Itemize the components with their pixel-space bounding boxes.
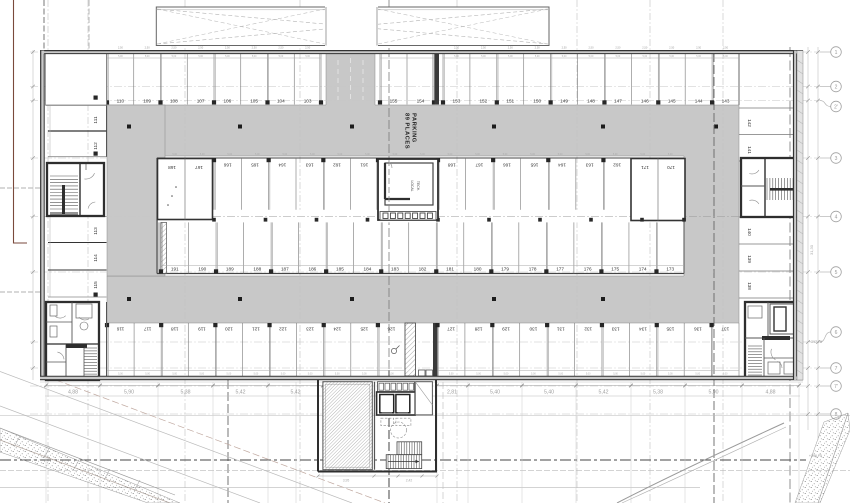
svg-text:175: 175 bbox=[611, 267, 619, 272]
svg-text:31,30: 31,30 bbox=[809, 244, 814, 255]
svg-text:171: 171 bbox=[641, 165, 649, 170]
svg-text:125: 125 bbox=[360, 327, 368, 332]
svg-text:5,00: 5,00 bbox=[145, 55, 150, 58]
svg-text:7: 7 bbox=[835, 366, 838, 372]
svg-text:103: 103 bbox=[304, 98, 312, 103]
svg-text:2,50: 2,50 bbox=[278, 46, 284, 50]
svg-text:4,88: 4,88 bbox=[765, 390, 775, 396]
svg-text:+396,75: +396,75 bbox=[809, 454, 822, 458]
svg-text:2,50: 2,50 bbox=[642, 46, 648, 50]
svg-text:190: 190 bbox=[198, 267, 206, 272]
svg-text:3,95: 3,95 bbox=[343, 479, 350, 483]
svg-text:5,00: 5,00 bbox=[454, 55, 459, 58]
svg-text:5,90: 5,90 bbox=[708, 390, 718, 396]
svg-text:187: 187 bbox=[281, 267, 289, 272]
svg-text:1: 1 bbox=[835, 50, 838, 56]
svg-text:182: 182 bbox=[419, 267, 427, 272]
svg-text:5,00: 5,00 bbox=[723, 373, 728, 376]
svg-text:4,88: 4,88 bbox=[68, 390, 78, 396]
svg-text:2': 2' bbox=[834, 104, 838, 110]
svg-text:2,50: 2,50 bbox=[696, 46, 702, 50]
svg-text:2,50: 2,50 bbox=[454, 46, 460, 50]
svg-text:2,50: 2,50 bbox=[669, 46, 675, 50]
svg-text:164: 164 bbox=[558, 162, 566, 167]
svg-text:152: 152 bbox=[479, 98, 487, 103]
svg-text:130: 130 bbox=[529, 327, 537, 332]
svg-text:2,42: 2,42 bbox=[406, 479, 413, 483]
svg-text:5,00: 5,00 bbox=[200, 153, 205, 156]
svg-text:+397,75: +397,75 bbox=[809, 340, 822, 344]
svg-text:115: 115 bbox=[93, 281, 98, 289]
svg-text:5,00: 5,00 bbox=[365, 153, 370, 156]
svg-text:5,00: 5,00 bbox=[281, 373, 286, 376]
svg-text:5,00: 5,00 bbox=[668, 373, 673, 376]
svg-text:5,00: 5,00 bbox=[562, 55, 567, 58]
svg-text:127: 127 bbox=[447, 327, 455, 332]
svg-text:2,50: 2,50 bbox=[225, 46, 231, 50]
svg-text:5: 5 bbox=[835, 270, 838, 276]
svg-text:126: 126 bbox=[387, 327, 395, 332]
svg-text:188: 188 bbox=[253, 267, 261, 272]
svg-text:148: 148 bbox=[587, 98, 595, 103]
svg-text:163: 163 bbox=[305, 162, 313, 167]
svg-text:5,38: 5,38 bbox=[180, 390, 190, 396]
svg-text:147: 147 bbox=[614, 98, 622, 103]
svg-text:89 PLACES: 89 PLACES bbox=[404, 113, 410, 149]
svg-text:138: 138 bbox=[747, 282, 752, 290]
svg-text:5,00: 5,00 bbox=[118, 373, 123, 376]
svg-text:155: 155 bbox=[390, 98, 398, 103]
svg-text:133: 133 bbox=[611, 327, 619, 332]
svg-text:178: 178 bbox=[529, 267, 537, 272]
svg-text:161: 161 bbox=[360, 162, 368, 167]
svg-text:5,42: 5,42 bbox=[598, 390, 608, 396]
svg-text:181: 181 bbox=[446, 267, 454, 272]
svg-text:5,00: 5,00 bbox=[393, 153, 398, 156]
svg-text:5,00: 5,00 bbox=[530, 153, 535, 156]
svg-text:2,50: 2,50 bbox=[305, 46, 311, 50]
svg-text:2,50: 2,50 bbox=[118, 46, 124, 50]
svg-text:145: 145 bbox=[668, 98, 676, 103]
svg-text:5,00: 5,00 bbox=[586, 373, 591, 376]
svg-text:5,00: 5,00 bbox=[308, 373, 313, 376]
svg-text:123: 123 bbox=[306, 327, 314, 332]
svg-text:5,00: 5,00 bbox=[145, 373, 150, 376]
svg-text:144: 144 bbox=[695, 98, 703, 103]
svg-text:2,50: 2,50 bbox=[723, 46, 729, 50]
svg-text:5,00: 5,00 bbox=[504, 373, 509, 376]
svg-text:186: 186 bbox=[308, 267, 316, 272]
svg-text:2,50: 2,50 bbox=[252, 46, 258, 50]
svg-text:2,50: 2,50 bbox=[562, 46, 568, 50]
svg-text:TECH.: TECH. bbox=[416, 181, 420, 191]
svg-text:146: 146 bbox=[641, 98, 649, 103]
svg-text:5,00: 5,00 bbox=[642, 55, 647, 58]
svg-text:177: 177 bbox=[556, 267, 564, 272]
svg-text:131: 131 bbox=[557, 327, 565, 332]
svg-text:5,00: 5,00 bbox=[227, 373, 232, 376]
svg-text:5,00: 5,00 bbox=[172, 373, 177, 376]
svg-text:5,38: 5,38 bbox=[653, 390, 663, 396]
svg-text:140: 140 bbox=[747, 228, 752, 236]
svg-text:5,00: 5,00 bbox=[476, 373, 481, 376]
svg-text:5,00: 5,00 bbox=[723, 55, 728, 58]
svg-text:134: 134 bbox=[639, 327, 647, 332]
svg-text:108: 108 bbox=[170, 98, 178, 103]
svg-text:129: 129 bbox=[502, 327, 510, 332]
svg-text:5,00: 5,00 bbox=[503, 153, 508, 156]
svg-text:151: 151 bbox=[506, 98, 514, 103]
svg-text:7': 7' bbox=[834, 384, 838, 390]
svg-text:5,00: 5,00 bbox=[172, 153, 177, 156]
svg-text:5,00: 5,00 bbox=[282, 153, 287, 156]
svg-text:6: 6 bbox=[835, 330, 838, 336]
svg-text:118: 118 bbox=[171, 327, 179, 332]
svg-text:166: 166 bbox=[223, 162, 231, 167]
svg-text:176: 176 bbox=[584, 267, 592, 272]
svg-text:2,50: 2,50 bbox=[615, 46, 621, 50]
svg-text:167: 167 bbox=[475, 162, 483, 167]
svg-text:143: 143 bbox=[722, 98, 730, 103]
svg-text:5,90: 5,90 bbox=[124, 390, 134, 396]
svg-text:5,00: 5,00 bbox=[362, 373, 367, 376]
svg-text:5,00: 5,00 bbox=[508, 55, 513, 58]
svg-text:5,42: 5,42 bbox=[235, 390, 245, 396]
svg-text:166: 166 bbox=[503, 162, 511, 167]
svg-text:5,00: 5,00 bbox=[535, 55, 540, 58]
svg-text:5,00: 5,00 bbox=[640, 153, 645, 156]
svg-text:2,50: 2,50 bbox=[145, 46, 151, 50]
svg-text:154: 154 bbox=[417, 98, 425, 103]
svg-text:5,00: 5,00 bbox=[475, 153, 480, 156]
svg-text:162: 162 bbox=[613, 162, 621, 167]
svg-text:5,00: 5,00 bbox=[613, 373, 618, 376]
svg-text:5,00: 5,00 bbox=[254, 373, 259, 376]
svg-text:122: 122 bbox=[279, 327, 287, 332]
svg-text:124: 124 bbox=[333, 327, 341, 332]
svg-text:163: 163 bbox=[585, 162, 593, 167]
svg-text:5,00: 5,00 bbox=[558, 153, 563, 156]
svg-text:168: 168 bbox=[447, 162, 455, 167]
svg-text:5,00: 5,00 bbox=[696, 55, 701, 58]
svg-text:128: 128 bbox=[474, 327, 482, 332]
svg-text:120: 120 bbox=[225, 327, 233, 332]
svg-text:162: 162 bbox=[333, 162, 341, 167]
svg-text:2: 2 bbox=[835, 84, 838, 90]
svg-text:5,00: 5,00 bbox=[227, 153, 232, 156]
svg-text:168: 168 bbox=[168, 165, 176, 170]
svg-text:2,50: 2,50 bbox=[198, 46, 204, 50]
svg-text:2,81: 2,81 bbox=[447, 390, 457, 396]
svg-text:135: 135 bbox=[666, 327, 674, 332]
svg-text:5,00: 5,00 bbox=[695, 373, 700, 376]
svg-text:5,00: 5,00 bbox=[669, 55, 674, 58]
svg-text:2,50: 2,50 bbox=[508, 46, 514, 50]
svg-text:3: 3 bbox=[835, 156, 838, 162]
svg-text:5,40: 5,40 bbox=[490, 390, 500, 396]
svg-text:106: 106 bbox=[223, 98, 231, 103]
svg-text:137: 137 bbox=[721, 327, 729, 332]
svg-text:165: 165 bbox=[251, 162, 259, 167]
svg-text:183: 183 bbox=[391, 267, 399, 272]
svg-text:PARKING: PARKING bbox=[411, 113, 417, 143]
svg-text:5,00: 5,00 bbox=[448, 153, 453, 156]
svg-text:170: 170 bbox=[667, 165, 675, 170]
svg-text:121: 121 bbox=[252, 327, 260, 332]
svg-text:184: 184 bbox=[364, 267, 372, 272]
svg-text:5,00: 5,00 bbox=[616, 55, 621, 58]
svg-text:104: 104 bbox=[277, 98, 285, 103]
svg-text:LOCAL: LOCAL bbox=[410, 180, 414, 191]
svg-text:5,00: 5,00 bbox=[118, 55, 123, 58]
svg-text:5,00: 5,00 bbox=[252, 55, 257, 58]
svg-text:116: 116 bbox=[116, 327, 124, 332]
svg-text:5,00: 5,00 bbox=[641, 373, 646, 376]
svg-text:2,50: 2,50 bbox=[481, 46, 487, 50]
svg-text:2,50: 2,50 bbox=[535, 46, 541, 50]
svg-text:5,00: 5,00 bbox=[613, 153, 618, 156]
svg-text:179: 179 bbox=[501, 267, 509, 272]
svg-text:5,00: 5,00 bbox=[255, 153, 260, 156]
svg-text:114: 114 bbox=[93, 254, 98, 262]
svg-text:149: 149 bbox=[560, 98, 568, 103]
svg-text:5,00: 5,00 bbox=[531, 373, 536, 376]
svg-text:107: 107 bbox=[197, 98, 205, 103]
svg-text:132: 132 bbox=[584, 327, 592, 332]
svg-text:5,00: 5,00 bbox=[335, 373, 340, 376]
svg-text:136: 136 bbox=[694, 327, 702, 332]
svg-text:112: 112 bbox=[93, 142, 98, 150]
svg-text:4: 4 bbox=[835, 214, 838, 220]
svg-text:111: 111 bbox=[93, 116, 98, 124]
svg-text:5,00: 5,00 bbox=[389, 373, 394, 376]
svg-text:185: 185 bbox=[336, 267, 344, 272]
svg-text:5,42: 5,42 bbox=[290, 390, 300, 396]
svg-text:5,00: 5,00 bbox=[199, 373, 204, 376]
svg-text:5,00: 5,00 bbox=[338, 153, 343, 156]
svg-text:189: 189 bbox=[226, 267, 234, 272]
svg-text:142: 142 bbox=[747, 119, 752, 127]
svg-text:5,00: 5,00 bbox=[279, 55, 284, 58]
svg-text:110: 110 bbox=[117, 98, 125, 103]
svg-text:5,00: 5,00 bbox=[558, 373, 563, 376]
svg-text:153: 153 bbox=[453, 98, 461, 103]
svg-text:164: 164 bbox=[278, 162, 286, 167]
svg-text:5,00: 5,00 bbox=[668, 153, 673, 156]
svg-text:119: 119 bbox=[198, 327, 206, 332]
svg-text:180: 180 bbox=[474, 267, 482, 272]
svg-text:105: 105 bbox=[250, 98, 258, 103]
svg-text:174: 174 bbox=[639, 267, 647, 272]
svg-text:5,00: 5,00 bbox=[589, 55, 594, 58]
svg-text:139: 139 bbox=[747, 255, 752, 263]
svg-text:5,00: 5,00 bbox=[172, 55, 177, 58]
svg-text:5,00: 5,00 bbox=[225, 55, 230, 58]
svg-text:5,00: 5,00 bbox=[481, 55, 486, 58]
svg-text:191: 191 bbox=[171, 267, 179, 272]
svg-text:165: 165 bbox=[530, 162, 538, 167]
svg-text:150: 150 bbox=[533, 98, 541, 103]
svg-text:173: 173 bbox=[666, 267, 674, 272]
svg-text:5,00: 5,00 bbox=[305, 55, 310, 58]
svg-text:141: 141 bbox=[747, 146, 752, 154]
svg-text:2,50: 2,50 bbox=[588, 46, 594, 50]
svg-text:167: 167 bbox=[195, 165, 203, 170]
svg-text:5,00: 5,00 bbox=[449, 373, 454, 376]
svg-text:2,50: 2,50 bbox=[171, 46, 177, 50]
svg-text:5,00: 5,00 bbox=[198, 55, 203, 58]
svg-text:5,00: 5,00 bbox=[310, 153, 315, 156]
svg-text:109: 109 bbox=[143, 98, 151, 103]
svg-text:5,00: 5,00 bbox=[585, 153, 590, 156]
svg-text:5,00: 5,00 bbox=[420, 153, 425, 156]
svg-text:5,40: 5,40 bbox=[544, 390, 554, 396]
svg-text:117: 117 bbox=[144, 327, 152, 332]
svg-text:113: 113 bbox=[93, 227, 98, 235]
